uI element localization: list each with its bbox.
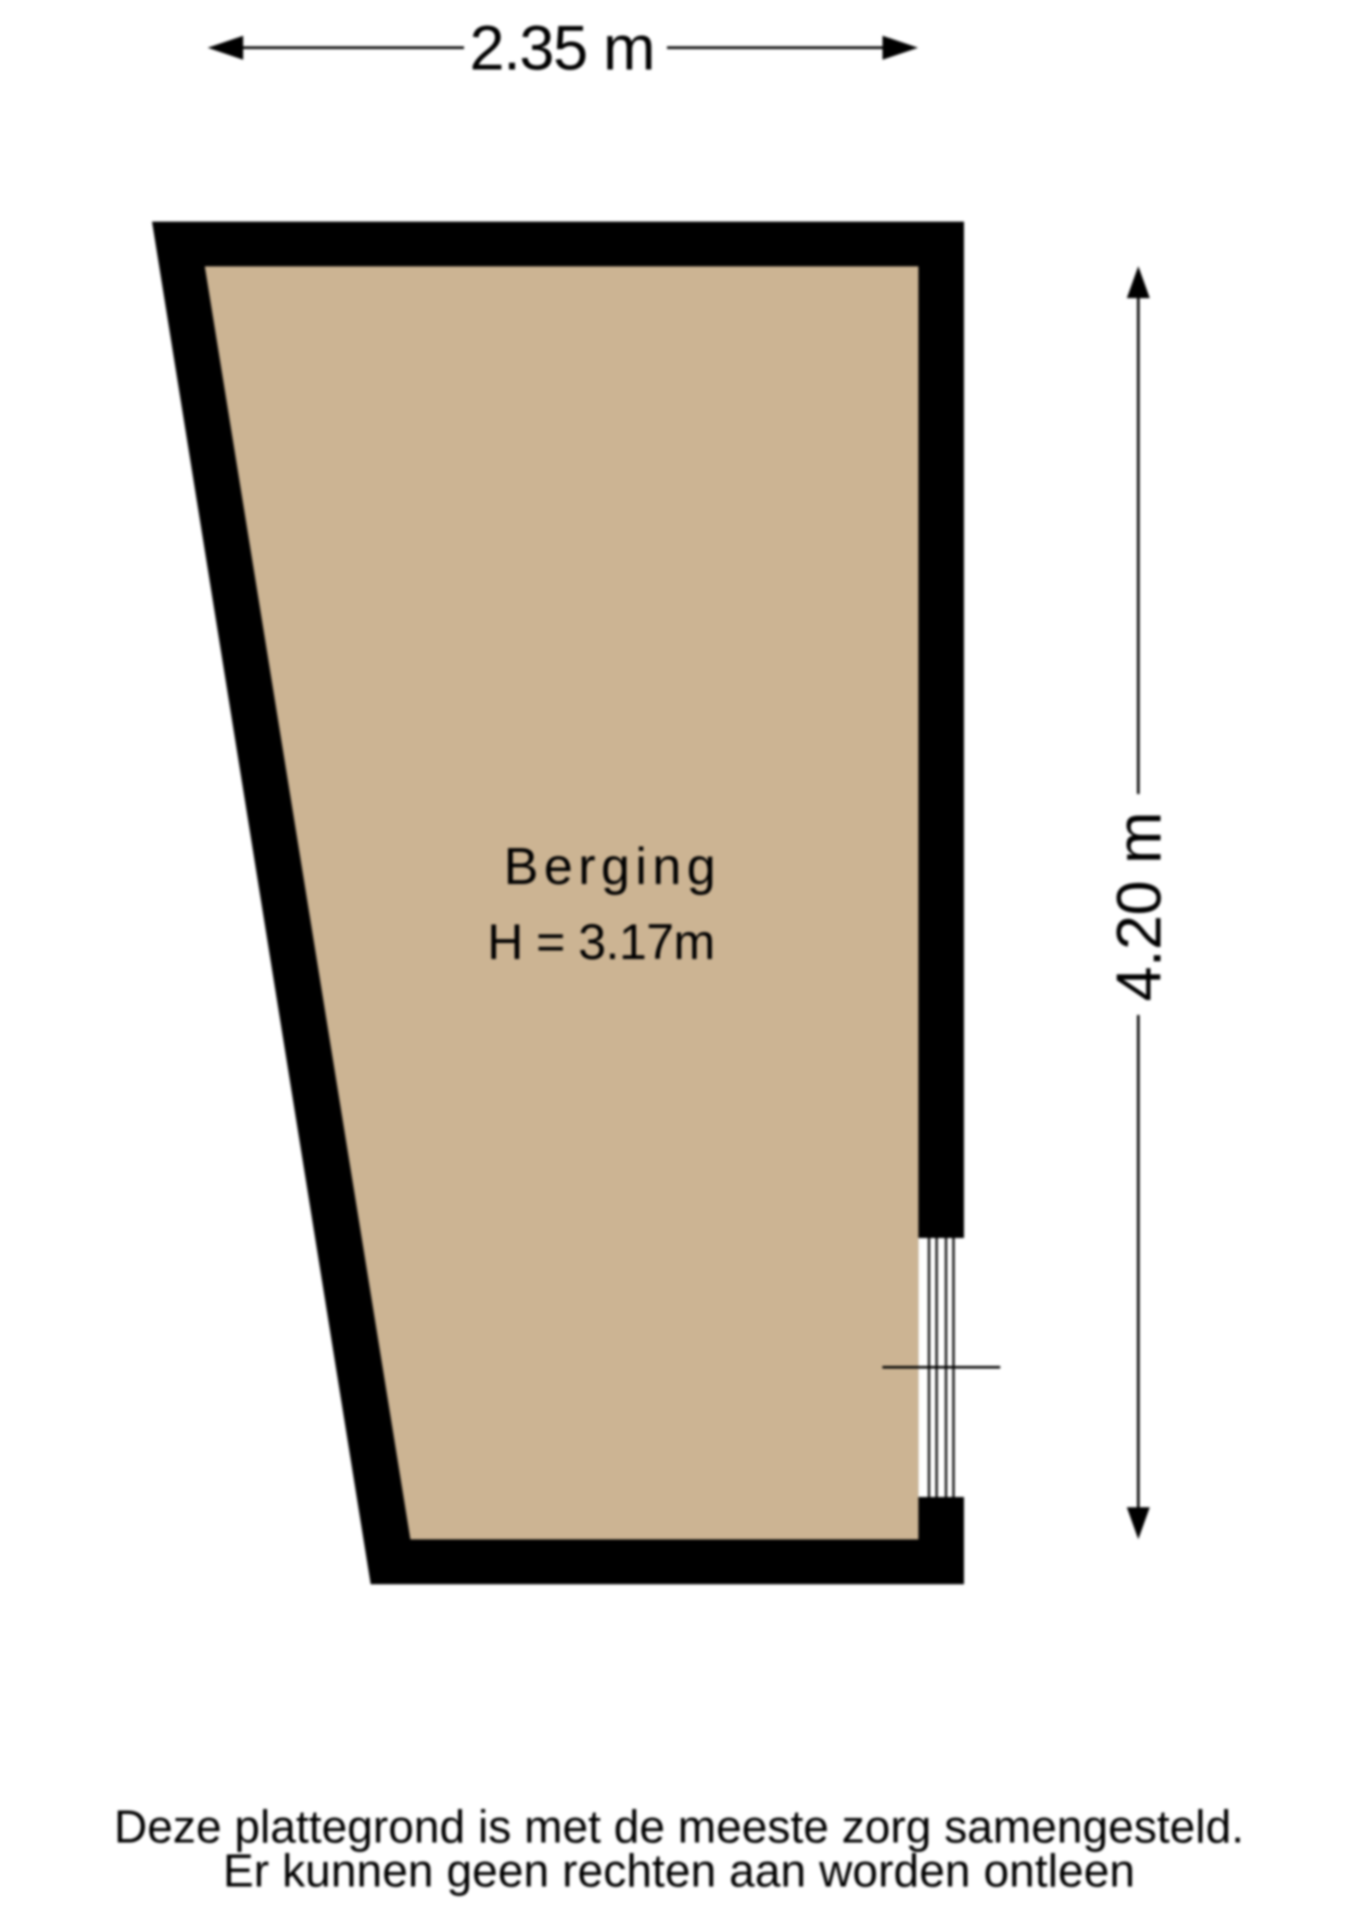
svg-text:4.20 m: 4.20 m	[1105, 812, 1175, 1002]
svg-text:2.35 m: 2.35 m	[470, 14, 656, 84]
svg-text:Er kunnen geen rechten aan wor: Er kunnen geen rechten aan worden ontlee…	[223, 1845, 1135, 1897]
svg-text:H = 3.17m: H = 3.17m	[487, 914, 715, 970]
